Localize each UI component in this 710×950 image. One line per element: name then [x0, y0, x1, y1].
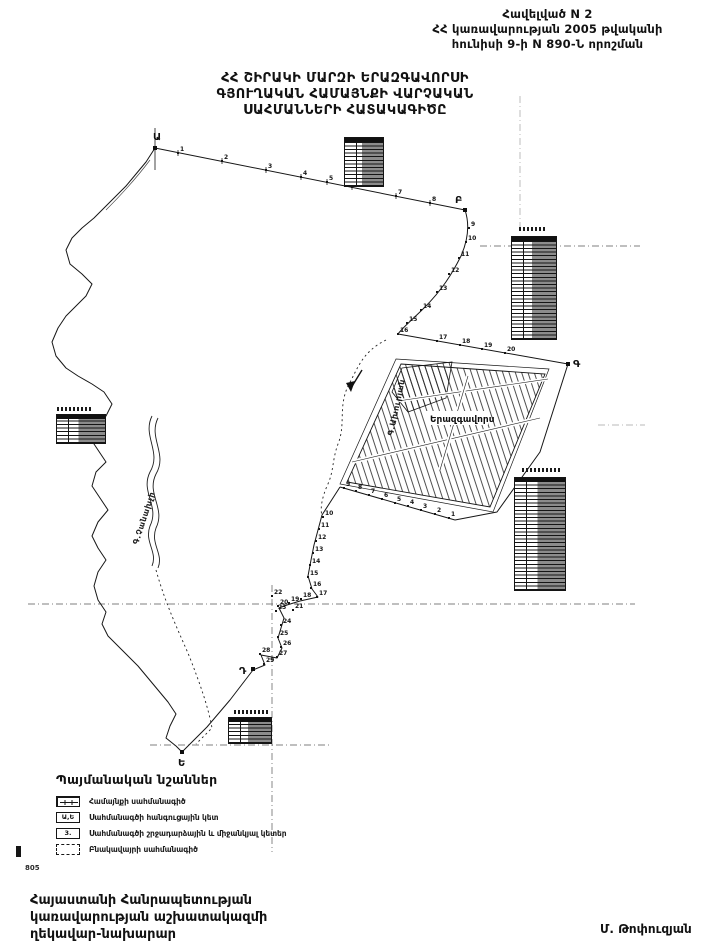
boundary-point-number: 4 — [303, 170, 307, 177]
boundary-point-number: 18 — [303, 592, 311, 599]
river-left-label: Գ.Չանախչի — [131, 491, 157, 546]
boundary-point-number: 6 — [384, 492, 388, 499]
boundary-point-number: 17 — [439, 334, 447, 341]
junction-point-icon-text: Ա,Ե — [62, 813, 75, 821]
boundary-point-number: 13 — [439, 285, 447, 292]
coordinate-table-right — [511, 236, 557, 340]
legend: Պայմանական նշաններ Համայնքի սահմանագիծ Ա… — [56, 772, 316, 857]
coordinate-table-bottom-caption — [234, 710, 268, 714]
legend-item-turning-points: 3. Սահմանագծի շրջադարձային և միջանկյալ կ… — [56, 825, 316, 841]
coordinate-table-right-caption — [519, 227, 545, 231]
boundary-point-number: 9 — [471, 221, 475, 228]
rivers: Գ.Չանախչի Գ.Ախուրյան — [131, 340, 407, 744]
legend-label: Համայնքի սահմանագիծ — [89, 797, 186, 806]
boundary-point-number: 9 — [346, 481, 350, 488]
boundary-point-number: 24 — [283, 618, 291, 625]
boundary-point-number: 4 — [410, 499, 414, 506]
turning-point-icon: 3. — [56, 828, 80, 839]
coordinate-table-left — [56, 414, 106, 444]
legend-label: Բնակավայրի սահմանագիծ — [89, 845, 198, 854]
boundary-point-number: 7 — [398, 189, 402, 196]
boundary-point-number: 19 — [291, 596, 299, 603]
boundary-point-number: 13 — [315, 546, 323, 553]
signature-line-3: ղեկավար-նախարար — [30, 926, 267, 943]
signature-block: Հայաստանի Հանրապետության կառավարության ա… — [30, 892, 267, 943]
junction-letter: Բ — [455, 195, 462, 206]
coordinate-table-left-caption — [57, 407, 91, 411]
boundary-point-number: 29 — [266, 657, 274, 664]
legend-label: Սահմանագծի հանգուցային կետ — [89, 813, 218, 822]
boundary-point-number: 23 — [278, 604, 286, 611]
boundary-point-number: 11 — [321, 522, 329, 529]
boundary-point-number: 5 — [397, 496, 401, 503]
legend-item-junction-point: Ա,Ե Սահմանագծի հանգուցային կետ — [56, 809, 316, 825]
boundary-point-number: 14 — [312, 558, 320, 565]
legend-item-community-boundary: Համայնքի սահմանագիծ — [56, 793, 316, 809]
boundary-point-number: 3 — [423, 503, 427, 510]
boundary-point-number: 5 — [329, 175, 333, 182]
boundary-point-number: 26 — [283, 640, 291, 647]
flow-arrow — [346, 370, 362, 392]
boundary-point-number: 2 — [224, 154, 228, 161]
signature-name: Մ. Թոփուզյան — [600, 922, 692, 936]
boundary-point-number: 19 — [484, 342, 492, 349]
boundary-point-number: 15 — [409, 316, 417, 323]
boundary-point-number: 16 — [400, 327, 408, 334]
boundary-point-number: 7 — [371, 488, 375, 495]
boundary-point-number: 10 — [468, 235, 476, 242]
junction-letter: Ե — [178, 758, 185, 769]
signature-line-1: Հայաստանի Հանրապետության — [30, 892, 267, 909]
boundary-point-number: 3 — [268, 163, 272, 170]
legend-label: Սահմանագծի շրջադարձային և միջանկյալ կետե… — [89, 829, 286, 838]
boundary-point-number: 10 — [325, 510, 333, 517]
boundary-point-number: 18 — [462, 338, 470, 345]
coordinate-table-top — [344, 137, 384, 187]
junction-point-icon: Ա,Ե — [56, 812, 80, 823]
boundary-point-number: 8 — [358, 484, 362, 491]
junction-letter: Գ — [573, 359, 581, 370]
settlement-name-label: Երազգավորս — [430, 415, 495, 425]
boundary-point-number: 16 — [313, 581, 321, 588]
legend-item-settlement-boundary: Բնակավայրի սահմանագիծ — [56, 841, 316, 857]
boundary-point-number: 12 — [318, 534, 326, 541]
boundary-point-number: 20 — [507, 346, 515, 353]
boundary-point-number: 14 — [423, 303, 431, 310]
boundary-point-number: 28 — [262, 647, 270, 654]
boundary-point-number: 1 — [451, 511, 455, 518]
boundary-point-number: 22 — [274, 589, 282, 596]
boundary-point-number: 11 — [461, 251, 469, 258]
boundary-point-number: 25 — [280, 630, 288, 637]
junction-letter: Ա — [153, 132, 161, 143]
river-left-continuation — [156, 570, 212, 744]
legend-heading: Պայմանական նշաններ — [56, 772, 316, 787]
turning-point-icon-text: 3. — [65, 829, 72, 837]
coordinate-table-right-lower — [514, 477, 566, 591]
coordinate-table-right-lower-caption — [522, 468, 560, 472]
boundary-point-number: 12 — [451, 267, 459, 274]
settlement-boundary-icon — [56, 844, 80, 855]
page-number: 805 — [25, 864, 40, 872]
boundary-point-number: 8 — [432, 196, 436, 203]
boundary-point-number: 15 — [310, 570, 318, 577]
community-boundary-icon — [56, 796, 80, 807]
signature-line-2: կառավարության աշխատակազմի — [30, 909, 267, 926]
boundary-point-number: 2 — [437, 507, 441, 514]
survey-grid — [28, 96, 645, 852]
boundary-point-number: 27 — [279, 650, 287, 657]
margin-mark — [16, 846, 21, 857]
coordinate-table-bottom — [228, 717, 272, 744]
junction-letter: Դ — [239, 666, 247, 677]
boundary-point-number: 1 — [180, 146, 184, 153]
boundary-point-number: 21 — [295, 603, 303, 610]
boundary-point-number: 17 — [319, 590, 327, 597]
scanned-map-sheet: Հավելված N 2 ՀՀ կառավարության 2005 թվակա… — [0, 0, 710, 950]
